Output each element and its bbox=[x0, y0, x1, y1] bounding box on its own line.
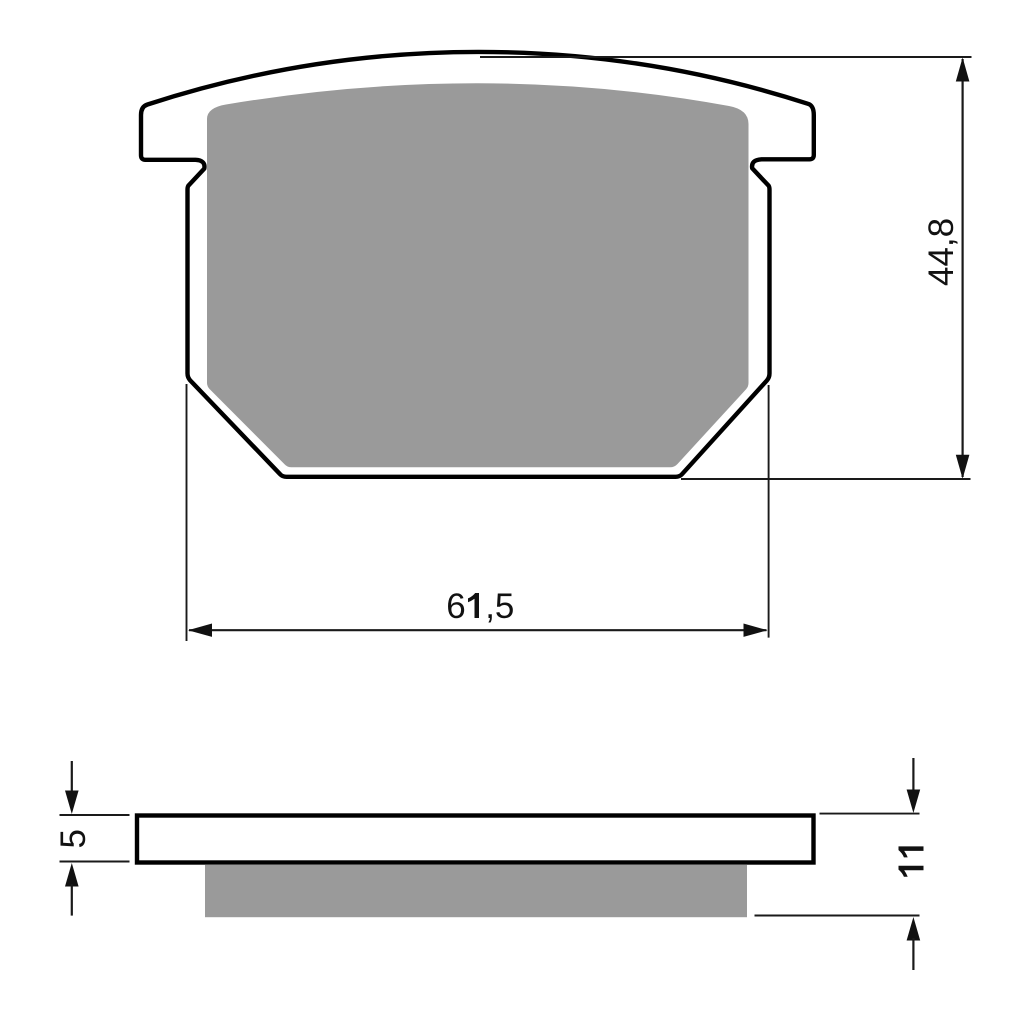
svg-text:5: 5 bbox=[54, 829, 93, 848]
svg-text:44,8: 44,8 bbox=[922, 218, 961, 286]
svg-text:,5: ,5 bbox=[485, 587, 514, 626]
svg-text:6: 6 bbox=[446, 587, 465, 626]
